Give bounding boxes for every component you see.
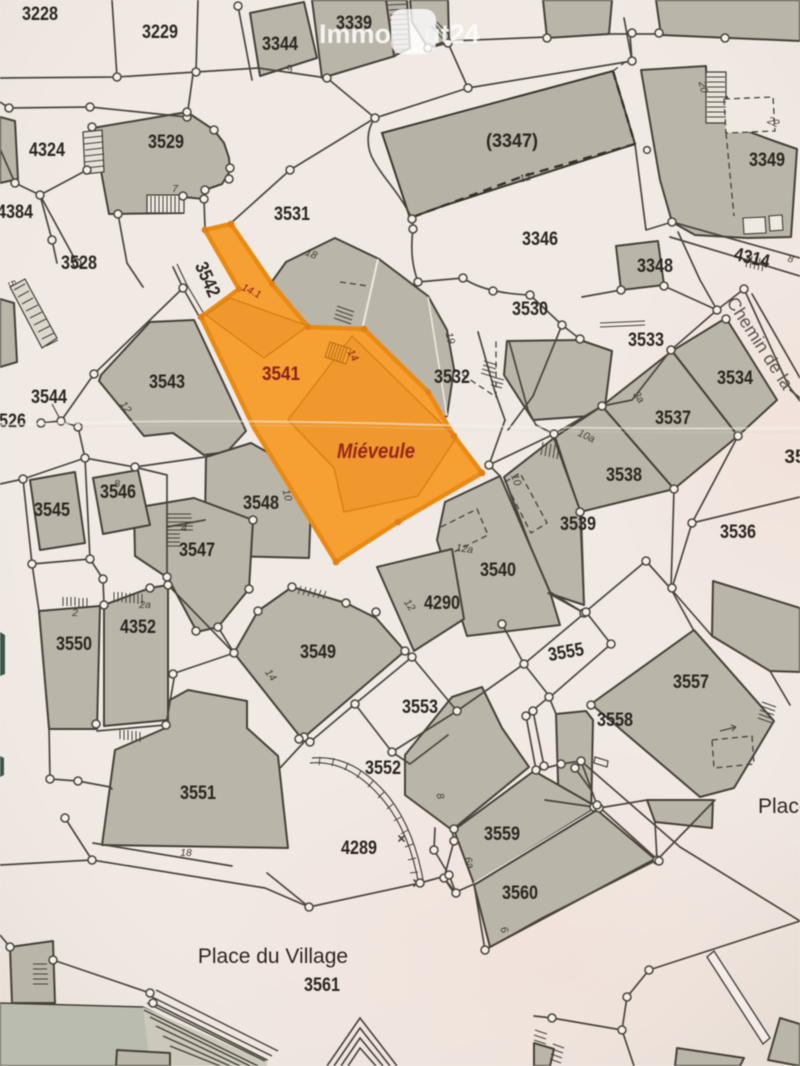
svg-text:3557: 3557: [673, 672, 709, 693]
svg-text:4: 4: [181, 522, 187, 534]
svg-text:12a: 12a: [455, 542, 474, 556]
svg-text:8: 8: [114, 478, 120, 490]
svg-text:3541: 3541: [262, 364, 300, 385]
svg-text:3551: 3551: [180, 783, 216, 804]
svg-text:4290: 4290: [424, 593, 460, 614]
svg-text:3558: 3558: [597, 710, 633, 731]
svg-text:3534: 3534: [717, 368, 753, 389]
svg-text:3228: 3228: [22, 4, 58, 25]
svg-text:3530: 3530: [512, 299, 548, 320]
svg-text:18: 18: [180, 847, 192, 859]
svg-text:3545: 3545: [34, 500, 70, 521]
svg-text:3344: 3344: [262, 34, 298, 55]
svg-text:4352: 4352: [120, 617, 156, 638]
svg-text:Place du Village: Place du Village: [198, 945, 348, 968]
svg-text:3540: 3540: [480, 560, 516, 581]
svg-text:(3347): (3347): [486, 131, 538, 152]
svg-text:3532: 3532: [434, 367, 470, 388]
svg-text:Miéveule: Miéveule: [337, 440, 415, 463]
svg-text:3528: 3528: [61, 253, 97, 274]
svg-text:2: 2: [71, 607, 78, 619]
svg-text:3529: 3529: [148, 132, 184, 153]
svg-text:3538: 3538: [606, 465, 642, 486]
svg-text:4289: 4289: [341, 838, 377, 859]
svg-text:3229: 3229: [142, 22, 178, 43]
svg-text:3531: 3531: [274, 204, 310, 225]
svg-text:3543: 3543: [149, 372, 185, 393]
svg-text:3547: 3547: [179, 540, 215, 561]
svg-text:3550: 3550: [56, 634, 92, 655]
svg-text:3537: 3537: [655, 408, 691, 429]
svg-text:3544: 3544: [31, 387, 67, 408]
svg-text:3549: 3549: [300, 642, 336, 663]
svg-text:3559: 3559: [484, 824, 520, 845]
svg-text:3346: 3346: [522, 229, 558, 250]
svg-text:2a: 2a: [138, 599, 151, 611]
svg-text:3536: 3536: [720, 522, 756, 543]
svg-text:3533: 3533: [628, 330, 664, 351]
svg-text:3553: 3553: [402, 697, 438, 718]
svg-text:Place: Place: [758, 795, 800, 818]
svg-text:3560: 3560: [502, 883, 538, 904]
svg-text:3561: 3561: [304, 975, 340, 996]
svg-text:3348: 3348: [637, 256, 673, 277]
svg-text:4384: 4384: [0, 202, 33, 223]
svg-text:Immo: Immo: [319, 19, 391, 49]
svg-text:ut24: ut24: [424, 19, 480, 49]
svg-text:35: 35: [784, 447, 800, 468]
svg-text:4324: 4324: [29, 140, 65, 161]
svg-text:3548: 3548: [243, 493, 279, 514]
svg-text:3349: 3349: [749, 150, 785, 171]
svg-text:3539: 3539: [560, 514, 596, 535]
svg-text:3552: 3552: [365, 758, 401, 779]
